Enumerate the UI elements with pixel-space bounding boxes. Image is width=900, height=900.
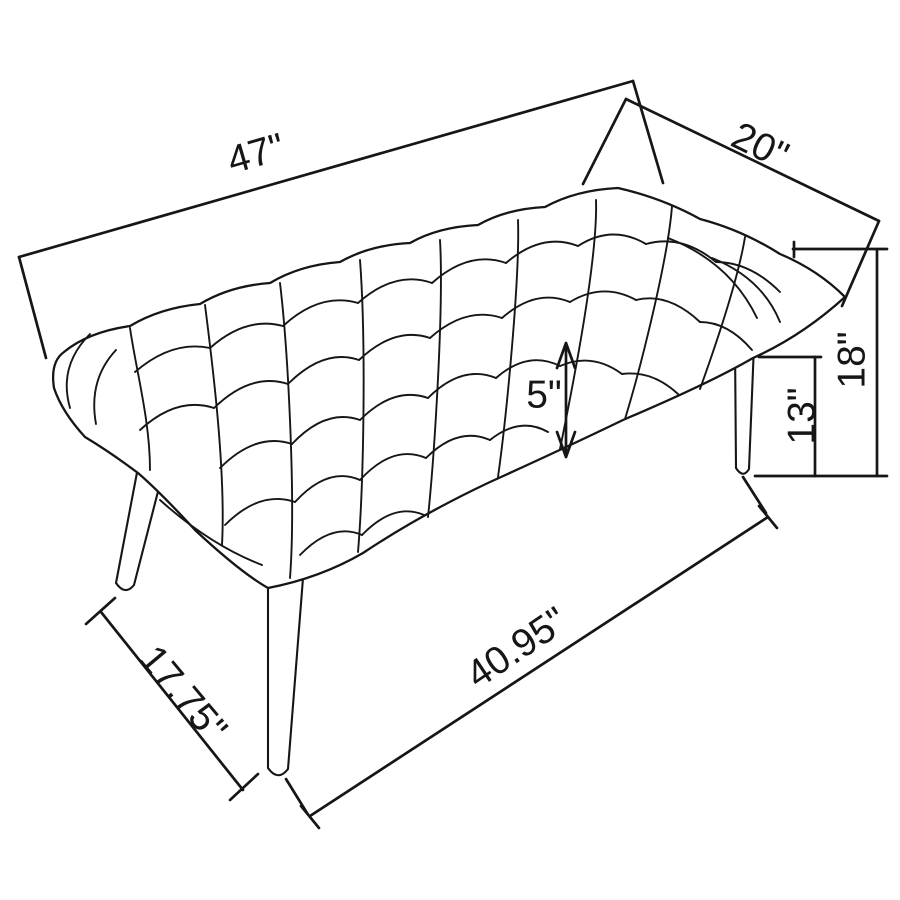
dimension-floor-to-frame: 13" bbox=[759, 357, 824, 476]
dim-label-top-depth: 20" bbox=[725, 114, 795, 178]
extension-line bbox=[583, 99, 626, 184]
bench-leg-front-left bbox=[268, 578, 303, 775]
extension-line bbox=[633, 81, 663, 183]
dim-label-end-width: 17.75" bbox=[131, 637, 236, 750]
extension-line bbox=[842, 221, 879, 306]
dim-label-cushion-thickness: 5" bbox=[526, 374, 562, 417]
extension-line bbox=[743, 477, 766, 513]
bench-seat bbox=[53, 188, 845, 588]
extension-tick bbox=[759, 506, 777, 528]
dimension-end-width: 17.75" bbox=[86, 598, 258, 800]
extension-line bbox=[19, 257, 46, 358]
bench-dimension-diagram: 47" 20" 18" 13" 5" bbox=[0, 0, 900, 900]
dimension-line bbox=[310, 517, 768, 816]
dim-label-overall-height: 18" bbox=[831, 331, 874, 388]
dim-label-floor-to-frame: 13" bbox=[781, 387, 824, 444]
diagram-canvas: 47" 20" 18" 13" 5" bbox=[0, 0, 900, 900]
extension-line bbox=[286, 779, 307, 813]
extension-tick bbox=[86, 598, 115, 624]
dim-label-top-length: 47" bbox=[223, 125, 290, 182]
seat-outline bbox=[53, 188, 845, 588]
